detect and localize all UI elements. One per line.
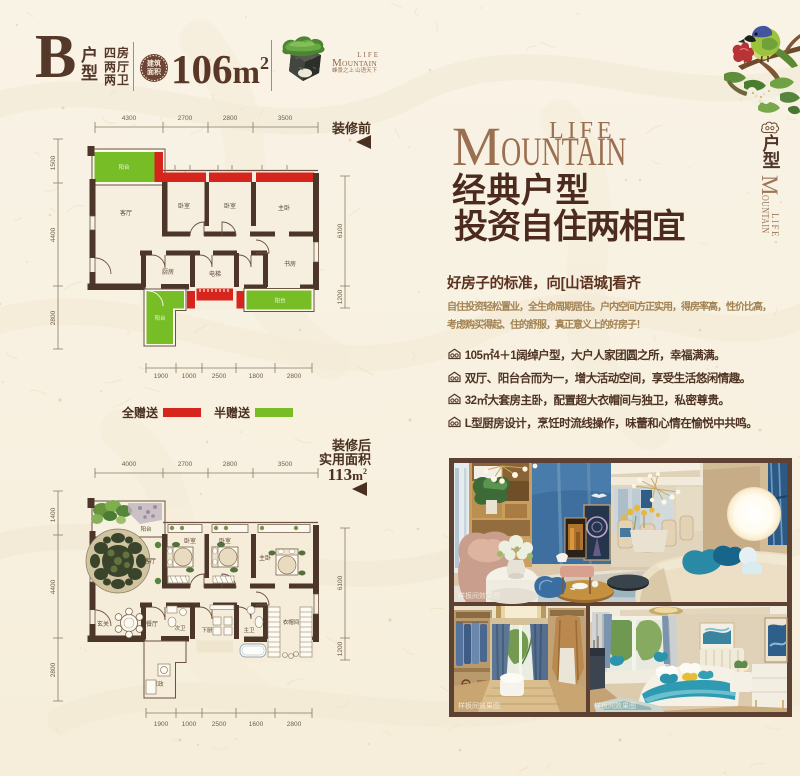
svg-text:113m2: 113m2 (328, 465, 367, 484)
svg-text:样板间效果图: 样板间效果图 (458, 701, 500, 710)
svg-text:2800: 2800 (223, 115, 238, 122)
svg-text:阳台: 阳台 (118, 163, 130, 171)
svg-text:建筑: 建筑 (147, 59, 161, 68)
svg-text:半赠送: 半赠送 (214, 405, 251, 420)
svg-text:1400: 1400 (50, 507, 57, 522)
svg-text:阳台: 阳台 (154, 314, 166, 322)
svg-text:2700: 2700 (178, 461, 193, 468)
svg-text:玄关: 玄关 (97, 620, 109, 628)
svg-text:2500: 2500 (212, 373, 227, 380)
svg-text:餐厅: 餐厅 (146, 620, 158, 628)
svg-text:全赠送: 全赠送 (121, 405, 159, 420)
svg-text:1900: 1900 (154, 721, 169, 728)
svg-text:主卧: 主卧 (259, 554, 271, 562)
svg-text:厨房: 厨房 (162, 268, 174, 276)
svg-text:4000: 4000 (122, 461, 137, 468)
svg-text:2800: 2800 (223, 461, 238, 468)
svg-text:阳台: 阳台 (140, 525, 152, 533)
svg-text:卧室: 卧室 (178, 202, 190, 210)
svg-text:1500: 1500 (50, 155, 57, 170)
svg-text:主卧: 主卧 (278, 204, 290, 212)
svg-text:卧室: 卧室 (219, 537, 231, 545)
svg-text:1000: 1000 (182, 373, 197, 380)
svg-text:1200: 1200 (337, 641, 344, 656)
svg-text:2800: 2800 (50, 310, 57, 325)
svg-text:1900: 1900 (154, 373, 169, 380)
svg-text:6100: 6100 (337, 223, 344, 238)
svg-text:3500: 3500 (278, 115, 293, 122)
svg-text:下厨: 下厨 (201, 627, 213, 634)
svg-text:2500: 2500 (212, 721, 227, 728)
svg-text:4300: 4300 (122, 115, 137, 122)
svg-text:1000: 1000 (182, 721, 197, 728)
svg-text:1200: 1200 (337, 289, 344, 304)
svg-text:次卫: 次卫 (174, 624, 186, 632)
svg-text:阳台: 阳台 (274, 297, 286, 305)
svg-text:1800: 1800 (249, 373, 264, 380)
svg-text:装修后: 装修后 (331, 438, 371, 453)
svg-text:卧室: 卧室 (184, 537, 196, 545)
svg-text:1600: 1600 (249, 721, 264, 728)
svg-text:客厅: 客厅 (120, 209, 132, 217)
svg-text:2800: 2800 (287, 721, 302, 728)
svg-text:3500: 3500 (278, 461, 293, 468)
svg-text:样板间效果图: 样板间效果图 (458, 591, 500, 600)
svg-text:2800: 2800 (287, 373, 302, 380)
svg-text:面积: 面积 (147, 67, 161, 76)
svg-text:书房: 书房 (284, 260, 296, 268)
svg-text:2800: 2800 (50, 662, 57, 677)
svg-text:6100: 6100 (337, 575, 344, 590)
svg-text:衣帽间: 衣帽间 (283, 618, 300, 626)
svg-text:4400: 4400 (50, 227, 57, 242)
svg-text:主卫: 主卫 (243, 626, 255, 634)
svg-text:装修前: 装修前 (331, 121, 371, 136)
svg-text:卧室: 卧室 (224, 202, 236, 210)
svg-text:2700: 2700 (178, 115, 193, 122)
svg-text:4400: 4400 (50, 579, 57, 594)
svg-text:电梯: 电梯 (209, 270, 221, 278)
svg-text:样板间效果图: 样板间效果图 (594, 701, 636, 710)
svg-text:客厅: 客厅 (144, 557, 156, 565)
